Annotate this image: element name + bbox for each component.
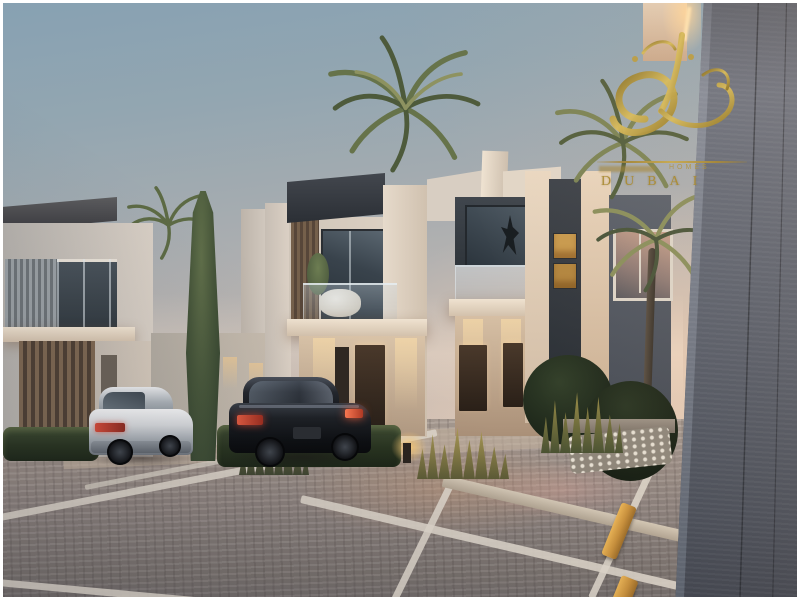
palm-tree-center <box>318 25 493 185</box>
brand-tagline: HOMES <box>669 164 710 171</box>
entry-door-c <box>503 343 523 407</box>
glass-mullions <box>57 259 117 329</box>
watermark-logo: HOMES DUBAI <box>581 23 771 203</box>
trunk-highlight <box>239 405 359 408</box>
townhouse-a-slab <box>287 319 427 336</box>
balcony-slat-railing <box>5 259 57 329</box>
balcony-glass-railing <box>303 283 397 322</box>
downlight-streak <box>395 338 417 410</box>
taillight <box>345 409 363 418</box>
timber-louver-screen <box>19 341 95 437</box>
left-hedge <box>3 427 99 461</box>
lit-stair-window <box>553 233 577 259</box>
property-render: HOMES DUBAI <box>0 0 800 600</box>
taillight <box>237 415 263 425</box>
bedroom-window <box>465 205 533 267</box>
license-plate <box>293 427 321 439</box>
brand-city: DUBAI <box>601 174 761 190</box>
wheel <box>159 435 181 457</box>
lit-stair-window <box>553 263 577 289</box>
entry-door-b <box>459 345 487 411</box>
left-balcony-slab <box>3 327 135 342</box>
wheel <box>331 433 359 461</box>
calligraphy-monogram <box>587 23 737 153</box>
wheel <box>107 439 133 465</box>
brand-tagline-obscured <box>599 166 655 172</box>
taillight <box>95 423 125 432</box>
pathway-light-post <box>403 443 411 463</box>
black-sedan-glass <box>249 381 333 404</box>
wall-sconce-glow <box>223 357 237 389</box>
wheel <box>255 437 285 467</box>
brand-rule <box>597 161 747 163</box>
